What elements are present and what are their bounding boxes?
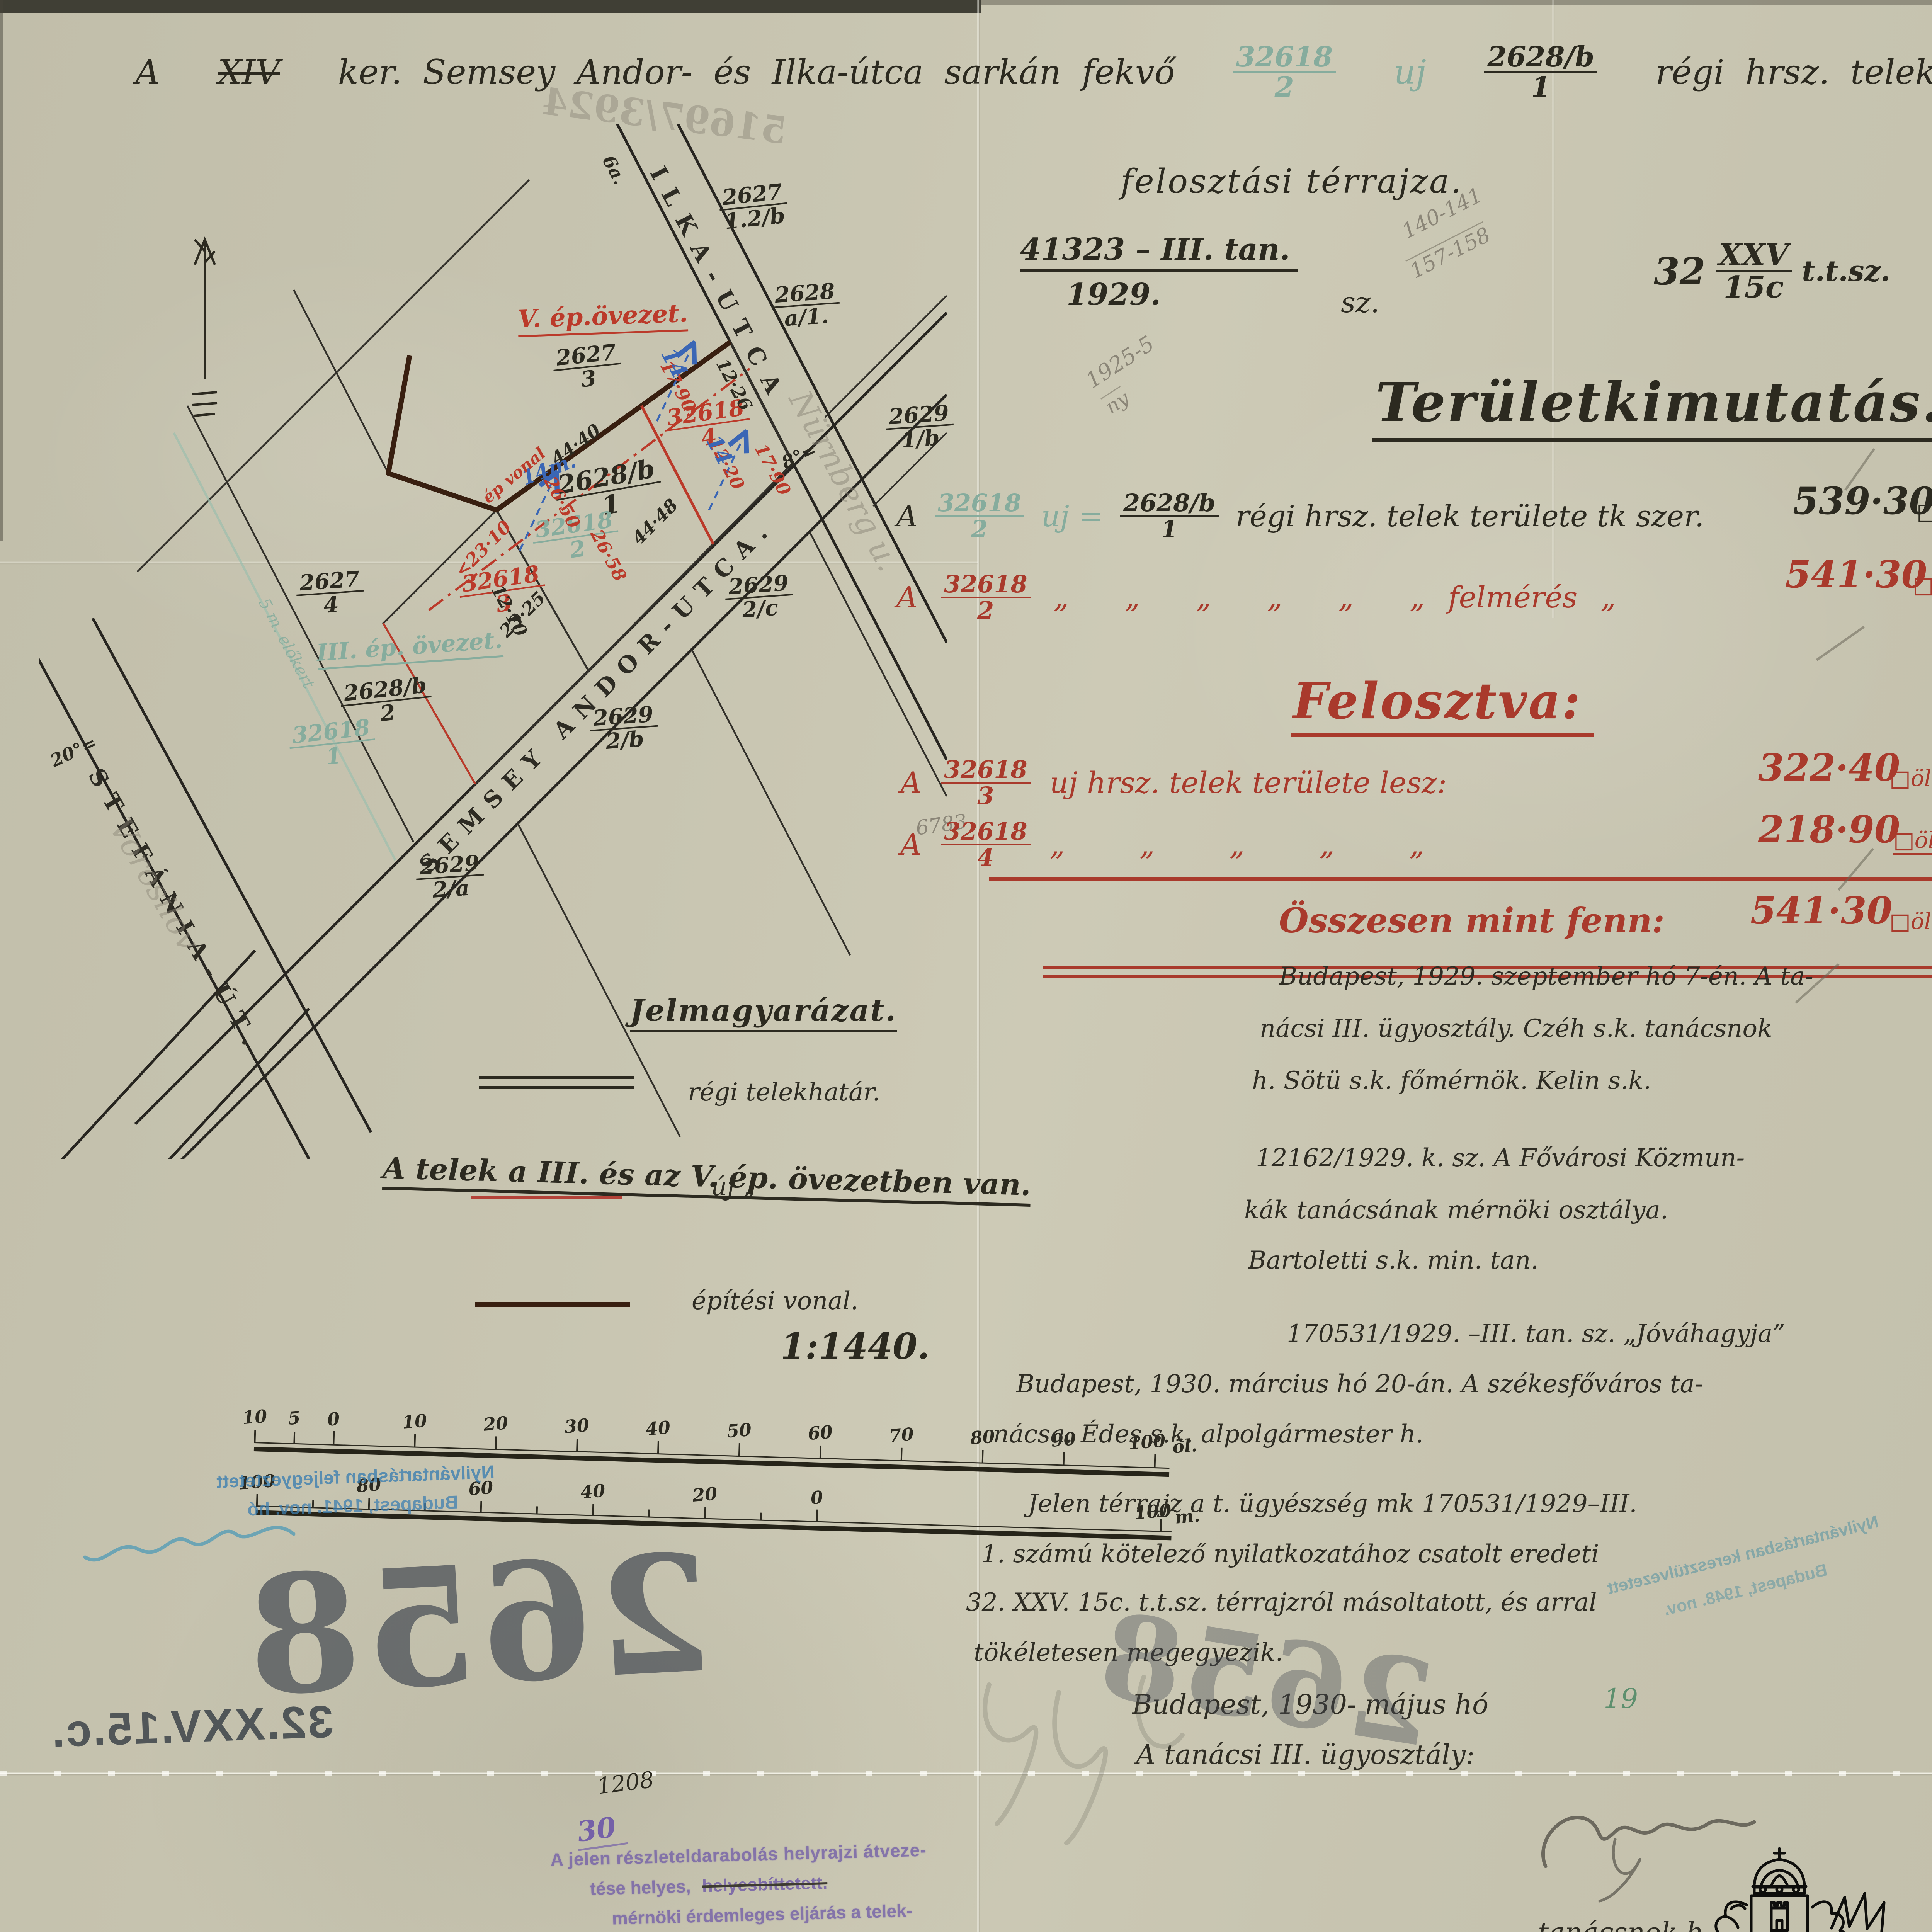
- r3-frac: 326183: [941, 757, 1031, 808]
- r1-frac-new-bottom: 2: [971, 517, 988, 542]
- pencil-note-a: 1925-5: [1081, 331, 1159, 394]
- ol-tick-80: 80: [969, 1426, 996, 1449]
- tick: [738, 1443, 740, 1456]
- new-plot-32618-1-bottom: 1: [323, 743, 344, 769]
- r1-frac-old-bottom: 1: [1161, 517, 1178, 542]
- tick: [657, 1441, 659, 1454]
- plot-2627-4: 26274: [295, 568, 366, 619]
- ol-tick-0: 0: [327, 1408, 340, 1430]
- plot-2628-a1: 2628a/1.: [770, 280, 841, 331]
- sheet-no-suffix: t.t.sz.: [1802, 255, 1890, 288]
- pencil-check-2: [1816, 626, 1865, 661]
- scan-edge-left: [0, 0, 3, 541]
- note4-line2: 1. számú kötelező nyilatkozatához csatol…: [981, 1540, 1599, 1568]
- plot-2628-b2-bottom: 2: [378, 701, 398, 726]
- r3-frac-top: 32618: [941, 757, 1031, 784]
- area-row-2: A 326182 „ „ „ „ „ „ felmérés „: [896, 572, 1616, 623]
- title-new-parcel-bottom: 2: [1275, 73, 1294, 101]
- r1-a: A: [896, 499, 918, 533]
- area-statement-title: Területkimutatás.: [1372, 371, 1932, 442]
- new-plot-32618-1: 326181: [287, 715, 378, 772]
- purple-stamp-line2b-struck: helyesbíttetett.: [702, 1872, 828, 1896]
- plot-2627-4-top: 2627: [295, 568, 364, 596]
- r3-unit: □öl.: [1889, 765, 1932, 791]
- title-old-parcel-top: 2628/b: [1484, 43, 1597, 73]
- r2-frac: 326182: [941, 572, 1031, 623]
- note3-line1: 170531/1929. –III. tan. sz. „Jóváhagyja”: [1287, 1320, 1785, 1348]
- sheet-no-prefix: 32: [1654, 250, 1706, 293]
- plot-2628-a1-bottom: a/1.: [782, 304, 831, 330]
- tick: [820, 1446, 821, 1459]
- tick: [293, 1432, 295, 1444]
- council-file-number: 41323 – III. tan. 1929.: [1020, 232, 1298, 312]
- r1-frac-old: 2628/b1: [1120, 491, 1219, 542]
- note1-line3: h. Sötü s.k. főmérnök. Kelin s.k.: [1252, 1066, 1651, 1095]
- r2-value: 541·30: [1785, 553, 1927, 596]
- r1-unit: □öl.: [1917, 498, 1932, 525]
- plot-2629-1b-top: 2629: [884, 401, 954, 430]
- r2-ditto: „ „ „ „ „ „: [1054, 580, 1425, 614]
- r4-a: A: [900, 827, 922, 862]
- r3-value: 322·40: [1758, 746, 1900, 789]
- r1-text: régi hrsz. telek területe tk szer.: [1236, 499, 1704, 533]
- title-district-crossed: XIV: [218, 52, 280, 92]
- plot-2629-2a-bottom: 2/a: [430, 876, 472, 901]
- r3-a: A: [900, 765, 922, 800]
- council-file-year: 1929.: [1020, 272, 1298, 312]
- scan-edge-top-left: [0, 0, 981, 13]
- document-title-line2: felosztási térrajza.: [1121, 162, 1463, 201]
- plot-2627-3-bottom: 3: [578, 367, 599, 391]
- title-old-parcel-bottom: 1: [1531, 73, 1551, 101]
- purple-stamp-line2a: tése helyes,: [590, 1876, 691, 1899]
- date-day-pencil: 19: [1604, 1683, 1638, 1714]
- council-file-sz: sz.: [1341, 286, 1380, 319]
- tick: [495, 1436, 497, 1449]
- plot-2629-1b-bottom: 1/b: [899, 426, 942, 452]
- note4-line3: 32. XXV. 15c. t.t.sz. térrajzról másolta…: [966, 1588, 1597, 1617]
- total-rule-top: [989, 877, 1932, 881]
- plot-2629-2c: 26292/c: [724, 571, 795, 622]
- legend-symbol-new-boundary: [471, 1196, 622, 1199]
- tick: [576, 1439, 578, 1452]
- r2-frac-bottom: 2: [977, 598, 994, 623]
- plot-2627-4-bottom: 4: [321, 593, 341, 617]
- north-arrow: [192, 240, 217, 416]
- tick: [901, 1448, 903, 1461]
- tick: [333, 1431, 335, 1445]
- note3-line3: nácsa. Édes s.k. alpolgármester h.: [993, 1420, 1423, 1449]
- r2-a: A: [896, 580, 918, 614]
- r1-frac-old-top: 2628/b: [1120, 491, 1219, 517]
- r4-frac-top: 32618: [941, 819, 1031, 845]
- r1-frac-new: 326182: [935, 491, 1024, 542]
- note2-line1: 12162/1929. k. sz. A Fővárosi Közmun-: [1256, 1144, 1745, 1172]
- area-row-1: A 326182 uj = 2628/b1 régi hrsz. telek t…: [896, 491, 1704, 542]
- plot-2629-1b: 26291/b: [884, 401, 955, 452]
- tick: [1160, 1519, 1162, 1532]
- tick: [592, 1504, 594, 1515]
- plot-2629-2c-bottom: 2/c: [740, 596, 781, 621]
- ol-tick-60: 60: [807, 1421, 833, 1444]
- document-title-line1: A XIV ker. Semsey Andor- és Ilka-útca sa…: [135, 43, 1932, 101]
- tick: [982, 1450, 984, 1463]
- r3-text: uj hrsz. telek területe lesz:: [1050, 765, 1447, 800]
- purple-stamp-line4: könyvi elintézés után következik.: [589, 1930, 868, 1932]
- purple-verification-stamp: A jelen részleteldarabolás helyrajzi átv…: [539, 1837, 1030, 1932]
- r2-unit: □öl: [1913, 572, 1932, 598]
- title-new-parcel-top: 32618: [1233, 43, 1336, 73]
- scale-ratio: 1:1440.: [781, 1325, 930, 1367]
- pencil-check-3: [1838, 848, 1874, 891]
- ol-tick-50: 50: [726, 1419, 752, 1442]
- ol-tick-30: 30: [564, 1415, 590, 1437]
- purple-handwritten-mark: 30: [573, 1809, 628, 1851]
- scanned-survey-document: A XIV ker. Semsey Andor- és Ilka-útca sa…: [0, 0, 1932, 1932]
- tick: [760, 1513, 762, 1520]
- tick: [1154, 1454, 1156, 1468]
- note2-line3: Bartoletti s.k. min. tan.: [1248, 1246, 1539, 1275]
- r3-frac-bottom: 3: [977, 784, 994, 808]
- r1-value: 539·30: [1793, 479, 1932, 523]
- r4-frac-bottom: 4: [977, 845, 994, 870]
- sheet-no-fraction: XXV 15c: [1716, 240, 1792, 303]
- plot-2629-2b: 26292/b: [588, 703, 660, 754]
- plot-2629-2b-bottom: 2/b: [604, 728, 646, 753]
- tick: [704, 1507, 706, 1519]
- felosztva-subtitle: Felosztva:: [1291, 672, 1594, 737]
- r4-frac: 326184: [941, 819, 1031, 870]
- tick: [816, 1510, 818, 1522]
- note3-line2: Budapest, 1930. március hó 20-án. A szék…: [1016, 1370, 1703, 1398]
- m-tick-40: 40: [580, 1480, 606, 1503]
- council-file-top: 41323 – III. tan.: [1020, 232, 1298, 272]
- ol-tick-10: 10: [401, 1410, 428, 1433]
- area-row-4: A 326184 „ „ „ „ „: [900, 819, 1425, 870]
- ol-tick-10l: 10: [241, 1406, 268, 1429]
- note4-line1: Jelen térrajz a t. ügyészség mk 170531/1…: [1028, 1490, 1637, 1518]
- title-a: A: [135, 52, 160, 92]
- plot-2627-3: 26273: [551, 340, 623, 394]
- r1-frac-new-top: 32618: [935, 491, 1024, 517]
- purple-stamp-line3: mérnöki érdemleges eljárás a telek-: [612, 1900, 912, 1929]
- r2-text: felmérés: [1448, 580, 1578, 614]
- note1-line1: Budapest, 1929. szeptember hó 7-én. A ta…: [1279, 962, 1813, 991]
- sheet-no-top: XXV: [1716, 240, 1792, 272]
- total-value: 541·30: [1750, 889, 1892, 932]
- m-tick-0: 0: [810, 1487, 824, 1509]
- tick: [480, 1501, 482, 1512]
- note1-line2: nácsi III. ügyosztály. Czéh s.k. tanácsn…: [1260, 1014, 1772, 1043]
- tick: [414, 1434, 416, 1447]
- sheet-no-bottom: 15c: [1723, 272, 1784, 303]
- pencil-note-b: ny: [1100, 386, 1133, 418]
- plot-2629-2c-top: 2629: [724, 571, 793, 600]
- r4-unit: □öl: [1893, 827, 1932, 855]
- r2-ditto2: „: [1600, 580, 1616, 614]
- bleed-pencil-scrawl: [958, 1638, 1229, 1855]
- plot-2629-2b-top: 2629: [588, 703, 658, 731]
- archive-crest-logo: [1638, 1839, 1920, 1932]
- r1-uj: uj =: [1041, 499, 1103, 533]
- title-old-parcel-fraction: 2628/b 1: [1484, 43, 1597, 101]
- ol-tick-20: 20: [483, 1412, 509, 1435]
- title-text-1: ker. Semsey Andor- és Ilka-útca sarkán f…: [338, 52, 1175, 92]
- r4-value: 218·90: [1758, 808, 1900, 851]
- title-text-2: régi hrsz. telek: [1655, 52, 1932, 92]
- plot-2627-12b: 26271.2/b: [717, 180, 789, 233]
- plot-2629-2a-top: 2629: [415, 852, 484, 880]
- tick: [536, 1506, 538, 1514]
- zone-label-v: V. ép.övezet.: [517, 299, 689, 337]
- note2-line2: kák tanácsának mérnöki osztálya.: [1244, 1196, 1668, 1225]
- ol-tick-5l: 5: [287, 1407, 301, 1429]
- title-uj: uj: [1394, 52, 1426, 92]
- total-label: Összesen mint fenn:: [1279, 900, 1665, 940]
- ol-tick-40: 40: [645, 1417, 671, 1440]
- r4-ditto: „ „ „ „ „: [1050, 827, 1425, 862]
- legend-item-building-line: építési vonal.: [692, 1287, 858, 1315]
- tick: [648, 1510, 650, 1517]
- ol-tick-70: 70: [888, 1423, 915, 1446]
- legend-title: Jelmagyarázat.: [630, 993, 897, 1032]
- r2-frac-top: 32618: [941, 572, 1031, 598]
- legend-symbol-building-line: [475, 1302, 630, 1307]
- bleed-catalog-number: 32.XXV.15.c.: [49, 1695, 334, 1757]
- total-unit: □öl: [1889, 908, 1931, 934]
- title-new-parcel-fraction: 32618 2: [1233, 43, 1336, 101]
- plot-2629-2a: 26292/a: [415, 852, 486, 903]
- tick: [1063, 1452, 1065, 1465]
- plot-2627-12b-bottom: 1.2/b: [722, 204, 787, 233]
- legend-item-old-boundary: régi telekhatár.: [688, 1078, 880, 1107]
- new-plot-32618-2-bottom: 2: [566, 537, 588, 562]
- map-sheet-number: 32 XXV 15c t.t.sz.: [1654, 240, 1891, 303]
- bleed-signature-teal: [70, 1499, 309, 1600]
- scan-edge-top-right: [981, 0, 1932, 5]
- area-row-3: A 326183 uj hrsz. telek területe lesz:: [900, 757, 1447, 808]
- legend-symbol-old-boundary: [479, 1076, 634, 1079]
- m-tick-20: 20: [692, 1483, 718, 1506]
